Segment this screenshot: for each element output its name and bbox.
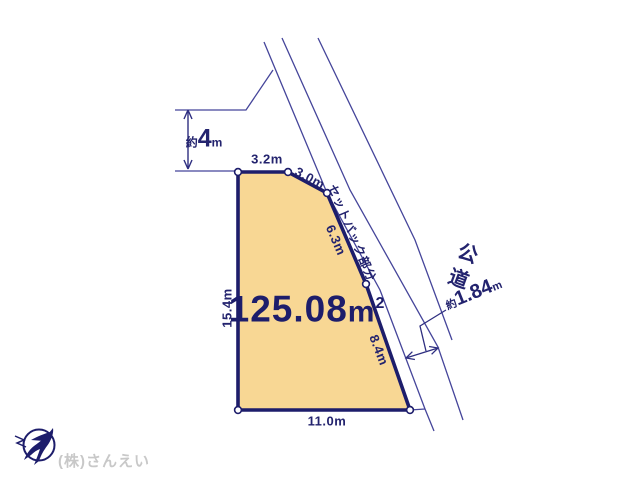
north-gap-unit: m — [212, 136, 223, 150]
dim-bottom-label: 11.0m — [308, 415, 347, 428]
vertex-bottom-left — [235, 407, 242, 414]
area-unit-sup: 2 — [375, 295, 385, 312]
north-gap-value: 4 — [198, 125, 212, 153]
dim-top-label: 3.2m — [251, 153, 283, 166]
land-plot-diagram: 3.2m 3.0m 6.3m 8.4m 15.4m 11.0m セットバック部分… — [0, 0, 640, 480]
vertex-top-right — [285, 169, 292, 176]
plot-diagram-canvas — [0, 0, 640, 480]
north-upper-boundary — [175, 70, 273, 110]
company-logo — [15, 428, 55, 465]
road-gap-leader-line — [420, 310, 446, 351]
vertex-top-left — [235, 169, 242, 176]
north-gap-label: 約4m — [186, 127, 223, 152]
vertex-bottom-right — [407, 407, 414, 414]
area-label: 125.08m2 — [229, 291, 386, 328]
area-value: 125.08 — [229, 289, 348, 330]
area-unit: m — [348, 296, 376, 329]
company-name: (株)さんえい — [58, 450, 150, 471]
north-gap-prefix: 約 — [186, 136, 198, 150]
